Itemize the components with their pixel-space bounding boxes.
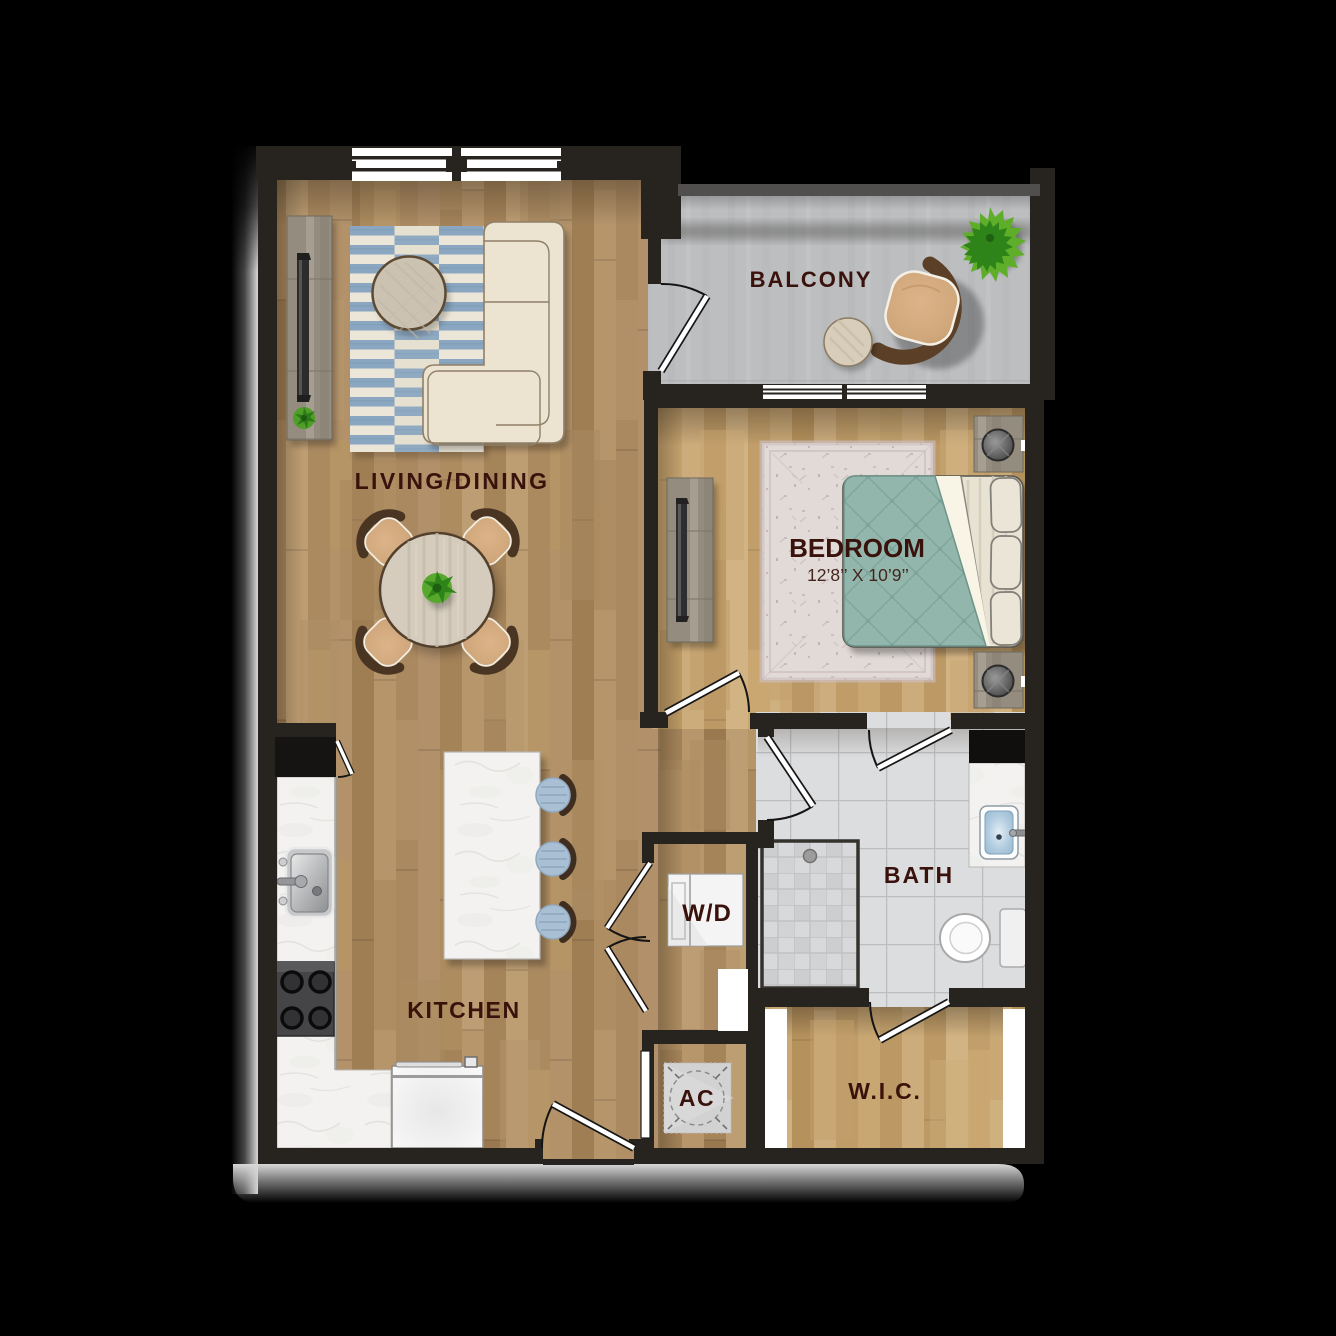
svg-text:AC: AC xyxy=(679,1085,715,1111)
svg-text:W/D: W/D xyxy=(682,900,732,927)
svg-text:BATH: BATH xyxy=(884,862,954,888)
svg-text:BEDROOM: BEDROOM xyxy=(789,533,925,563)
svg-text:BALCONY: BALCONY xyxy=(750,267,873,292)
svg-text:W.I.C.: W.I.C. xyxy=(848,1078,921,1104)
svg-text:KITCHEN: KITCHEN xyxy=(407,997,520,1023)
svg-text:LIVING/DINING: LIVING/DINING xyxy=(355,468,550,494)
svg-text:12’8’’ X 10’9’’: 12’8’’ X 10’9’’ xyxy=(807,565,909,585)
